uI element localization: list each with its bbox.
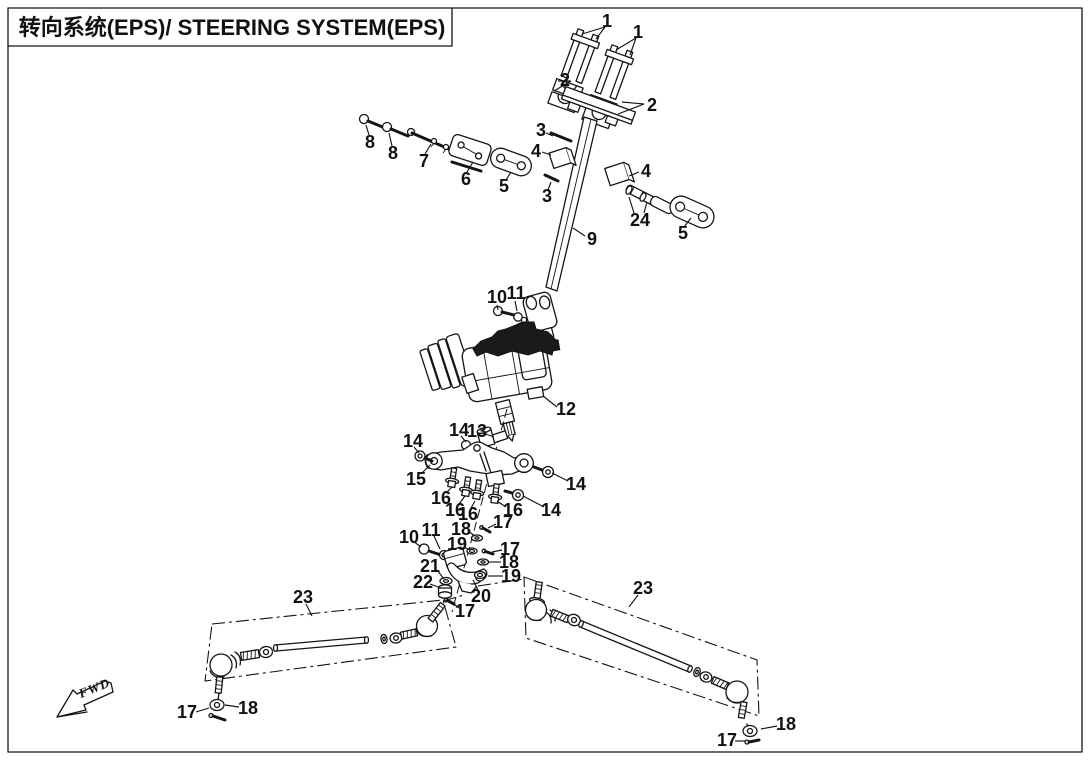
part-1-clamp-bolts-right (592, 44, 635, 101)
part-14-bolt-lower-right (505, 490, 524, 501)
callout-2: 2 (647, 95, 657, 115)
callout-17: 17 (717, 730, 737, 750)
callout-17: 17 (177, 702, 197, 722)
callout-20: 20 (471, 586, 491, 606)
callout-23: 23 (293, 587, 313, 607)
callout-11: 11 (421, 520, 440, 540)
callout-22: 22 (413, 572, 433, 592)
part-18-nut-right-lower (743, 724, 757, 737)
callout-12: 12 (556, 399, 576, 419)
page-title: 转向系统(EPS)/ STEERING SYSTEM(EPS) (19, 15, 446, 40)
callout-14: 14 (541, 500, 561, 520)
callout-1: 1 (633, 22, 643, 42)
part-14-bolt-right (534, 467, 554, 478)
part-10-bolt-ujoint (494, 307, 515, 316)
callout-6: 6 (461, 169, 471, 189)
callout-18: 18 (238, 698, 258, 718)
callout-11: 11 (506, 283, 525, 303)
part-17-cotter-upper (480, 526, 490, 532)
part-17-cotter-left-lower (209, 714, 225, 721)
part-17-cotter-right-lower (745, 740, 759, 744)
callout-14: 14 (403, 431, 423, 451)
callout-17: 17 (493, 512, 513, 532)
callout-19: 19 (501, 566, 521, 586)
callout-5: 5 (678, 223, 688, 243)
part-3-pin-lower (545, 175, 558, 181)
callout-5: 5 (499, 176, 509, 196)
callout-13: 13 (467, 421, 487, 441)
part-8-screw-b (383, 123, 409, 137)
callout-7: 7 (419, 151, 429, 171)
callout-8: 8 (365, 132, 375, 152)
part-18-washer-mid (478, 559, 489, 565)
callout-3: 3 (542, 186, 552, 206)
callout-1: 1 (602, 11, 612, 31)
callout-15: 15 (406, 469, 426, 489)
part-19-ring-mid (475, 572, 486, 579)
part-5-link-plate-right (667, 193, 718, 232)
callout-10: 10 (399, 527, 419, 547)
part-6-bracket-plate (448, 133, 493, 171)
part-22-bushing (439, 585, 452, 598)
callout-14: 14 (566, 474, 586, 494)
part-23-tie-rod-left (205, 600, 456, 693)
callout-4: 4 (641, 161, 651, 181)
part-12-eps-unit (418, 322, 560, 443)
callout-9: 9 (587, 229, 597, 249)
callout-4: 4 (531, 141, 541, 161)
fwd-arrow: FWD (57, 675, 113, 717)
part-17-cotter-mid (482, 549, 493, 554)
part-11-nut-ujoint (514, 313, 527, 323)
callout-10: 10 (487, 287, 507, 307)
part-5-link-plate-left (488, 145, 534, 178)
parts-diagram-page: 转向系统(EPS)/ STEERING SYSTEM(EPS) (0, 0, 1090, 760)
part-23-tie-rod-right (524, 577, 759, 718)
callout-24: 24 (630, 210, 650, 230)
part-9-steering-shaft (546, 117, 597, 291)
callout-3: 3 (536, 120, 546, 140)
part-18-nut-left-lower (210, 693, 224, 711)
part-10-bolt-pitman (419, 544, 441, 555)
callout-2: 2 (560, 70, 570, 90)
part-3-pin-upper (551, 133, 571, 141)
callout-18: 18 (776, 714, 796, 734)
callout-23: 23 (633, 578, 653, 598)
part-18-washer-upper (472, 535, 483, 541)
callout-8: 8 (388, 143, 398, 163)
part-21-washer (440, 578, 452, 585)
callout-19: 19 (447, 534, 467, 554)
steering-system-diagram: 转向系统(EPS)/ STEERING SYSTEM(EPS) (0, 0, 1090, 760)
callout-14: 14 (449, 420, 469, 440)
part-8-screw-a (360, 115, 386, 129)
